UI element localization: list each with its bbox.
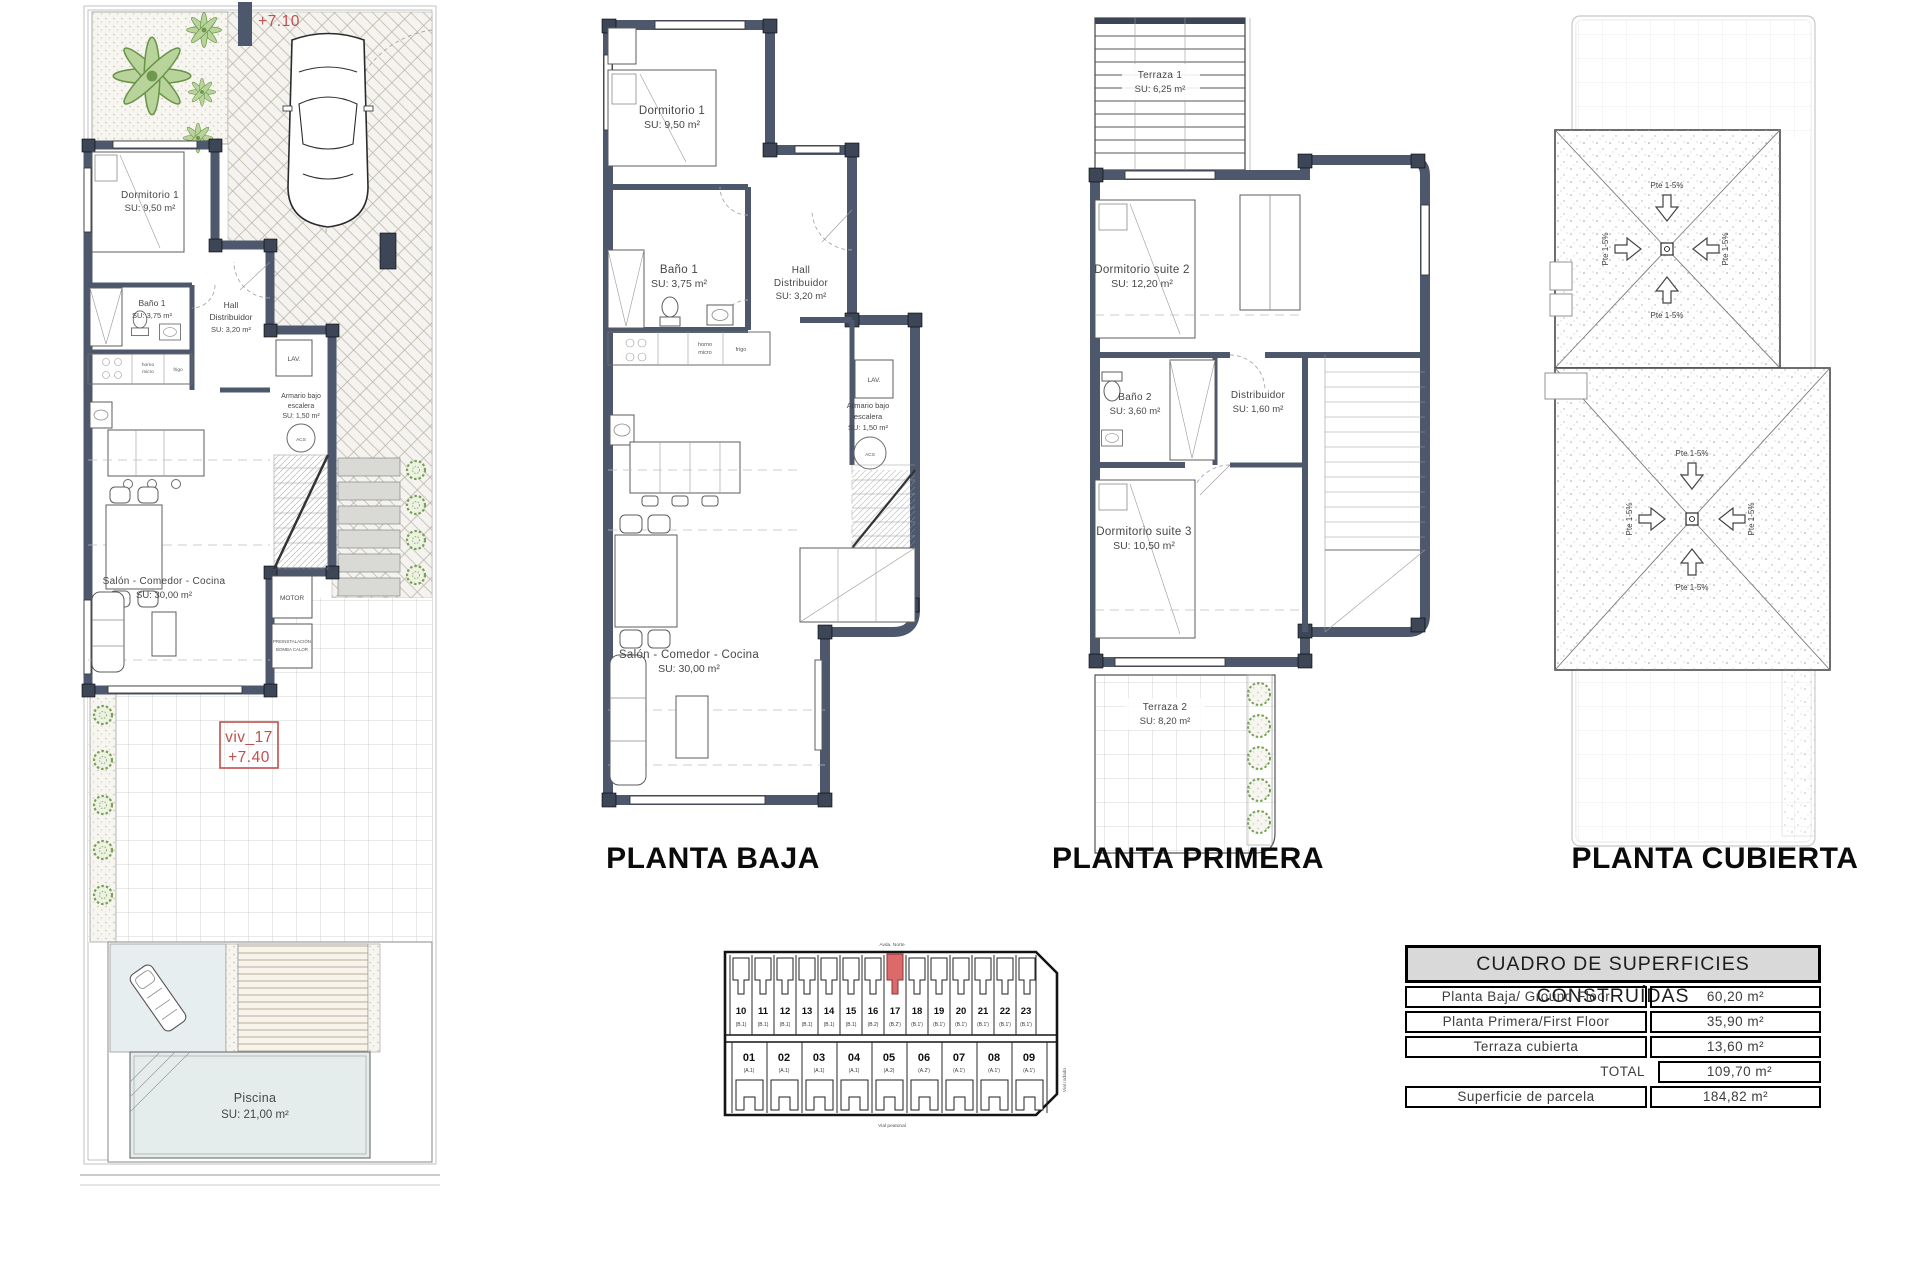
room-area: SU: 9,50 m²: [125, 203, 176, 214]
pp-suite2: Dormitorio suite 2 SU: 12,20 m²: [1094, 195, 1305, 338]
plan-title: PLANTA CUBIERTA: [1572, 842, 1859, 875]
areas-table: CUADRO DE SUPERFICIES CONSTRUÍDAS Planta…: [1405, 945, 1821, 1108]
sink-icon: [707, 305, 733, 325]
svg-text:SU: 3,20 m²: SU: 3,20 m²: [776, 291, 827, 302]
row-value: 60,20 m²: [1650, 986, 1821, 1008]
pb-stairs: [800, 465, 915, 622]
living-room: Salón - Comedor - Cocina SU: 30,00 m²: [88, 460, 270, 672]
room-label: Baño 1: [139, 298, 166, 308]
street-label-bottom: Vial peatonal: [878, 1123, 906, 1129]
svg-text:escalera: escalera: [854, 412, 883, 421]
svg-text:(B.1): (B.1): [824, 1022, 835, 1028]
svg-text:11: 11: [758, 1006, 769, 1017]
svg-text:horno: horno: [698, 342, 712, 348]
bush-icon: [407, 531, 425, 549]
sink-icon: [1102, 430, 1123, 446]
svg-text:Pte 1-5%: Pte 1-5%: [1676, 449, 1709, 458]
under-stair-closet: LAV. Armario bajo escalera SU: 1,50 m² A…: [276, 340, 321, 452]
svg-text:Salón - Comedor - Cocina: Salón - Comedor - Cocina: [619, 649, 759, 661]
rear-yard: [88, 598, 432, 942]
toilet-icon: [660, 297, 680, 326]
table-row: Planta Primera/First Floor 35,90 m²: [1405, 1011, 1821, 1033]
svg-text:09: 09: [1023, 1052, 1035, 1064]
svg-text:03: 03: [813, 1052, 825, 1064]
svg-text:23: 23: [1021, 1006, 1032, 1017]
svg-text:10: 10: [736, 1006, 747, 1017]
svg-text:SU: 1,50 m²: SU: 1,50 m²: [282, 413, 320, 420]
table-row-total: TOTAL 109,70 m²: [1405, 1061, 1821, 1083]
svg-text:SU: 6,25 m²: SU: 6,25 m²: [1135, 84, 1186, 95]
row-label: Terraza cubierta: [1405, 1036, 1647, 1058]
svg-text:Pte 1-5%: Pte 1-5%: [1721, 233, 1730, 266]
svg-text:16: 16: [868, 1006, 879, 1017]
svg-text:02: 02: [778, 1052, 790, 1064]
svg-text:Distribuidor: Distribuidor: [210, 312, 253, 322]
svg-text:(A.2'): (A.2'): [918, 1068, 930, 1074]
gate-pillar: [380, 233, 396, 269]
svg-text:Salón - Comedor - Cocina: Salón - Comedor - Cocina: [103, 576, 226, 587]
palm-tree-icon: [188, 78, 216, 106]
table-row: Superficie de parcela 184,82 m²: [1405, 1086, 1821, 1108]
svg-text:viv_17: viv_17: [225, 729, 273, 746]
svg-text:18: 18: [912, 1006, 923, 1017]
svg-text:08: 08: [988, 1052, 1000, 1064]
svg-text:(B.1'): (B.1'): [1020, 1022, 1032, 1028]
svg-text:(B.1'): (B.1'): [955, 1022, 967, 1028]
svg-text:MOTOR: MOTOR: [280, 595, 304, 602]
svg-text:ACS: ACS: [865, 452, 875, 458]
svg-text:Pte 1-5%: Pte 1-5%: [1651, 181, 1684, 190]
svg-text:07: 07: [953, 1052, 965, 1064]
svg-text:SU: 1,50 m²: SU: 1,50 m²: [848, 423, 889, 432]
svg-text:(B.1): (B.1): [780, 1022, 791, 1028]
svg-text:frigo: frigo: [173, 367, 183, 373]
site-plan: +7.10: [80, 0, 440, 1235]
svg-text:Hall: Hall: [792, 265, 810, 276]
svg-text:(B.1): (B.1): [736, 1022, 747, 1028]
svg-text:LAV.: LAV.: [287, 356, 300, 363]
svg-text:Dormitorio suite 3: Dormitorio suite 3: [1096, 526, 1192, 538]
svg-text:Distribuidor: Distribuidor: [774, 278, 829, 289]
svg-text:micro: micro: [698, 350, 711, 356]
svg-text:Armario bajo: Armario bajo: [281, 393, 321, 400]
palm-tree-icon: [113, 37, 191, 115]
svg-text:(B.1'): (B.1'): [911, 1022, 923, 1028]
room-area: SU: 3,75 m²: [132, 311, 173, 320]
row-value: 109,70 m²: [1658, 1061, 1821, 1083]
svg-text:13: 13: [802, 1006, 813, 1017]
pb-kitchen: horno micro frigo: [608, 332, 770, 506]
svg-text:20: 20: [956, 1006, 967, 1017]
svg-text:Hall: Hall: [224, 300, 239, 310]
row-label: Planta Primera/First Floor: [1405, 1011, 1647, 1033]
svg-text:Terraza 2: Terraza 2: [1143, 702, 1188, 713]
svg-text:SU: 3,75 m²: SU: 3,75 m²: [651, 278, 708, 290]
svg-text:SU: 10,50 m²: SU: 10,50 m²: [1113, 540, 1175, 552]
garden: [92, 12, 228, 153]
room-label: Dormitorio 1: [121, 190, 179, 201]
svg-text:Terraza 1: Terraza 1: [1138, 70, 1183, 81]
bedroom: Dormitorio 1 SU: 9,50 m²: [92, 152, 184, 252]
svg-text:SU: 9,50 m²: SU: 9,50 m²: [644, 119, 701, 131]
svg-text:BOMBA CALOR: BOMBA CALOR: [276, 647, 308, 652]
svg-text:(B.1): (B.1): [758, 1022, 769, 1028]
hall: Hall Distribuidor SU: 3,20 m²: [210, 300, 253, 334]
svg-text:(B.1'): (B.1'): [977, 1022, 989, 1028]
svg-text:21: 21: [978, 1006, 989, 1017]
svg-text:(B.2): (B.2): [868, 1022, 879, 1028]
pp-distribuidor: Distribuidor SU: 1,60 m²: [1231, 390, 1286, 415]
svg-text:(B.1'): (B.1'): [933, 1022, 945, 1028]
svg-text:Pte 1-5%: Pte 1-5%: [1625, 503, 1634, 536]
svg-text:frigo: frigo: [736, 347, 747, 353]
svg-text:19: 19: [934, 1006, 945, 1017]
svg-text:(A.1): (A.1): [744, 1068, 755, 1074]
table-row: Terraza cubierta 13,60 m²: [1405, 1036, 1821, 1058]
svg-text:SU: 8,20 m²: SU: 8,20 m²: [1140, 716, 1191, 727]
svg-text:04: 04: [848, 1052, 861, 1064]
bush-icon: [94, 751, 112, 769]
bush-icon: [407, 461, 425, 479]
pb-living: Salón - Comedor - Cocina SU: 30,00 m²: [608, 470, 825, 785]
svg-text:(A.1): (A.1): [849, 1068, 860, 1074]
svg-text:Dormitorio suite 2: Dormitorio suite 2: [1094, 264, 1190, 276]
svg-text:Baño 1: Baño 1: [660, 264, 698, 276]
pb-doors: [720, 187, 852, 326]
svg-text:01: 01: [743, 1052, 755, 1064]
palm-tree-icon: [187, 13, 222, 48]
plan-title: PLANTA PRIMERA: [1052, 842, 1324, 875]
svg-text:PREINSTALACIÓN: PREINSTALACIÓN: [273, 639, 311, 644]
pc-roof-lower: Pte 1-5% Pte 1-5% Pte 1-5% Pte 1-5%: [1545, 368, 1830, 670]
key-plan: Avda. Norte 10(B.1) 11(B.1) 12(B.1): [720, 930, 1140, 1180]
svg-text:SU: 3,20 m²: SU: 3,20 m²: [211, 325, 252, 334]
pp-terraza2: Terraza 2 SU: 8,20 m²: [1095, 675, 1275, 853]
plan-title: PLANTA BAJA: [606, 842, 820, 875]
svg-text:(A.1'): (A.1'): [1023, 1068, 1035, 1074]
pp-suite3: Dormitorio suite 3 SU: 10,50 m²: [1095, 480, 1305, 638]
row-value: 35,90 m²: [1650, 1011, 1821, 1033]
svg-text:(A.1'): (A.1'): [953, 1068, 965, 1074]
svg-text:(B.1): (B.1): [846, 1022, 857, 1028]
bush-icon: [407, 566, 425, 584]
svg-text:(B.2'): (B.2'): [889, 1022, 901, 1028]
planta-primera: Terraza 1 SU: 6,25 m² Dormitorio suite 2…: [1080, 10, 1470, 890]
unit-id-label: viv_17 +7.40: [220, 722, 278, 768]
planta-baja: Dormitorio 1 SU: 9,50 m² Baño 1 SU: 3,75…: [600, 10, 960, 890]
svg-text:SU: 12,20 m²: SU: 12,20 m²: [1111, 278, 1173, 290]
bathroom: Baño 1 SU: 3,75 m²: [90, 288, 180, 346]
svg-text:12: 12: [780, 1006, 791, 1017]
svg-text:SU: 3,60 m²: SU: 3,60 m²: [1110, 406, 1161, 417]
pp-bathroom2: Baño 2 SU: 3,60 m²: [1102, 360, 1215, 460]
svg-text:SU: 1,60 m²: SU: 1,60 m²: [1233, 404, 1284, 415]
pp-stairs: [1325, 355, 1425, 632]
row-value: 13,60 m²: [1650, 1036, 1821, 1058]
pb-bedroom: Dormitorio 1 SU: 9,50 m²: [608, 28, 716, 166]
row-value: 184,82 m²: [1650, 1086, 1821, 1108]
pb-bathroom: Baño 1 SU: 3,75 m²: [608, 250, 733, 328]
sink-icon: [160, 324, 181, 340]
areas-table-title: CUADRO DE SUPERFICIES CONSTRUÍDAS: [1405, 945, 1821, 983]
wall-stub: [238, 2, 252, 46]
svg-text:SU: 30,00 m²: SU: 30,00 m²: [136, 590, 192, 601]
stairs: [274, 455, 328, 569]
svg-text:horno: horno: [142, 362, 155, 368]
row-label: TOTAL: [1405, 1061, 1655, 1083]
svg-text:Armario bajo: Armario bajo: [847, 401, 890, 410]
svg-text:ACS: ACS: [296, 437, 306, 443]
pc-roof-upper: Pte 1-5% Pte 1-5% Pte 1-5% Pte 1-5%: [1550, 130, 1780, 368]
svg-text:LAV.: LAV.: [867, 377, 880, 384]
svg-text:(A.2): (A.2): [884, 1068, 895, 1074]
bush-icon: [94, 886, 112, 904]
pp-terraza1: Terraza 1 SU: 6,25 m²: [1095, 18, 1250, 170]
svg-text:(A.1): (A.1): [779, 1068, 790, 1074]
row-label: Planta Baja/ Ground Floor: [1405, 986, 1647, 1008]
svg-text:(B.1): (B.1): [802, 1022, 813, 1028]
planta-cubierta: Pte 1-5% Pte 1-5% Pte 1-5% Pte 1-5% Pte …: [1530, 10, 1920, 890]
street-label-top: Avda. Norte: [879, 942, 905, 948]
svg-text:14: 14: [824, 1006, 835, 1017]
svg-text:(A.1'): (A.1'): [988, 1068, 1000, 1074]
svg-text:+7.40: +7.40: [228, 749, 270, 766]
svg-text:escalera: escalera: [288, 403, 315, 410]
svg-text:Pte 1-5%: Pte 1-5%: [1747, 503, 1756, 536]
svg-text:Piscina: Piscina: [234, 1091, 276, 1105]
svg-text:Baño 2: Baño 2: [1118, 392, 1152, 403]
svg-text:Dormitorio 1: Dormitorio 1: [639, 105, 705, 117]
svg-text:(A.1): (A.1): [814, 1068, 825, 1074]
svg-text:06: 06: [918, 1052, 930, 1064]
svg-text:micro: micro: [142, 369, 154, 375]
svg-text:Pte 1-5%: Pte 1-5%: [1651, 311, 1684, 320]
row-label: Superficie de parcela: [1405, 1086, 1647, 1108]
svg-text:SU: 30,00 m²: SU: 30,00 m²: [658, 663, 720, 675]
svg-text:15: 15: [846, 1006, 857, 1017]
svg-text:(B.1'): (B.1'): [999, 1022, 1011, 1028]
svg-text:Pte 1-5%: Pte 1-5%: [1676, 583, 1709, 592]
pool-zone: Piscina SU: 21,00 m²: [108, 942, 432, 1162]
svg-text:05: 05: [883, 1052, 895, 1064]
svg-text:Pte 1-5%: Pte 1-5%: [1601, 233, 1610, 266]
street-label-right: Vial rodado: [1062, 1068, 1068, 1093]
svg-text:22: 22: [1000, 1006, 1011, 1017]
svg-text:Distribuidor: Distribuidor: [1231, 390, 1286, 401]
bush-icon: [94, 796, 112, 814]
svg-text:17: 17: [890, 1006, 901, 1017]
level-label-top: +7.10: [258, 13, 300, 30]
table-row: Planta Baja/ Ground Floor 60,20 m²: [1405, 986, 1821, 1008]
bush-icon: [407, 496, 425, 514]
kitchen: horno micro frigo: [88, 354, 204, 489]
bush-icon: [94, 706, 112, 724]
bush-icon: [94, 841, 112, 859]
pb-hall: Hall Distribuidor SU: 3,20 m²: [774, 265, 829, 302]
architectural-sheet: +7.10: [0, 0, 1920, 1280]
svg-text:SU: 21,00 m²: SU: 21,00 m²: [221, 1109, 289, 1121]
car-icon: [283, 34, 373, 228]
